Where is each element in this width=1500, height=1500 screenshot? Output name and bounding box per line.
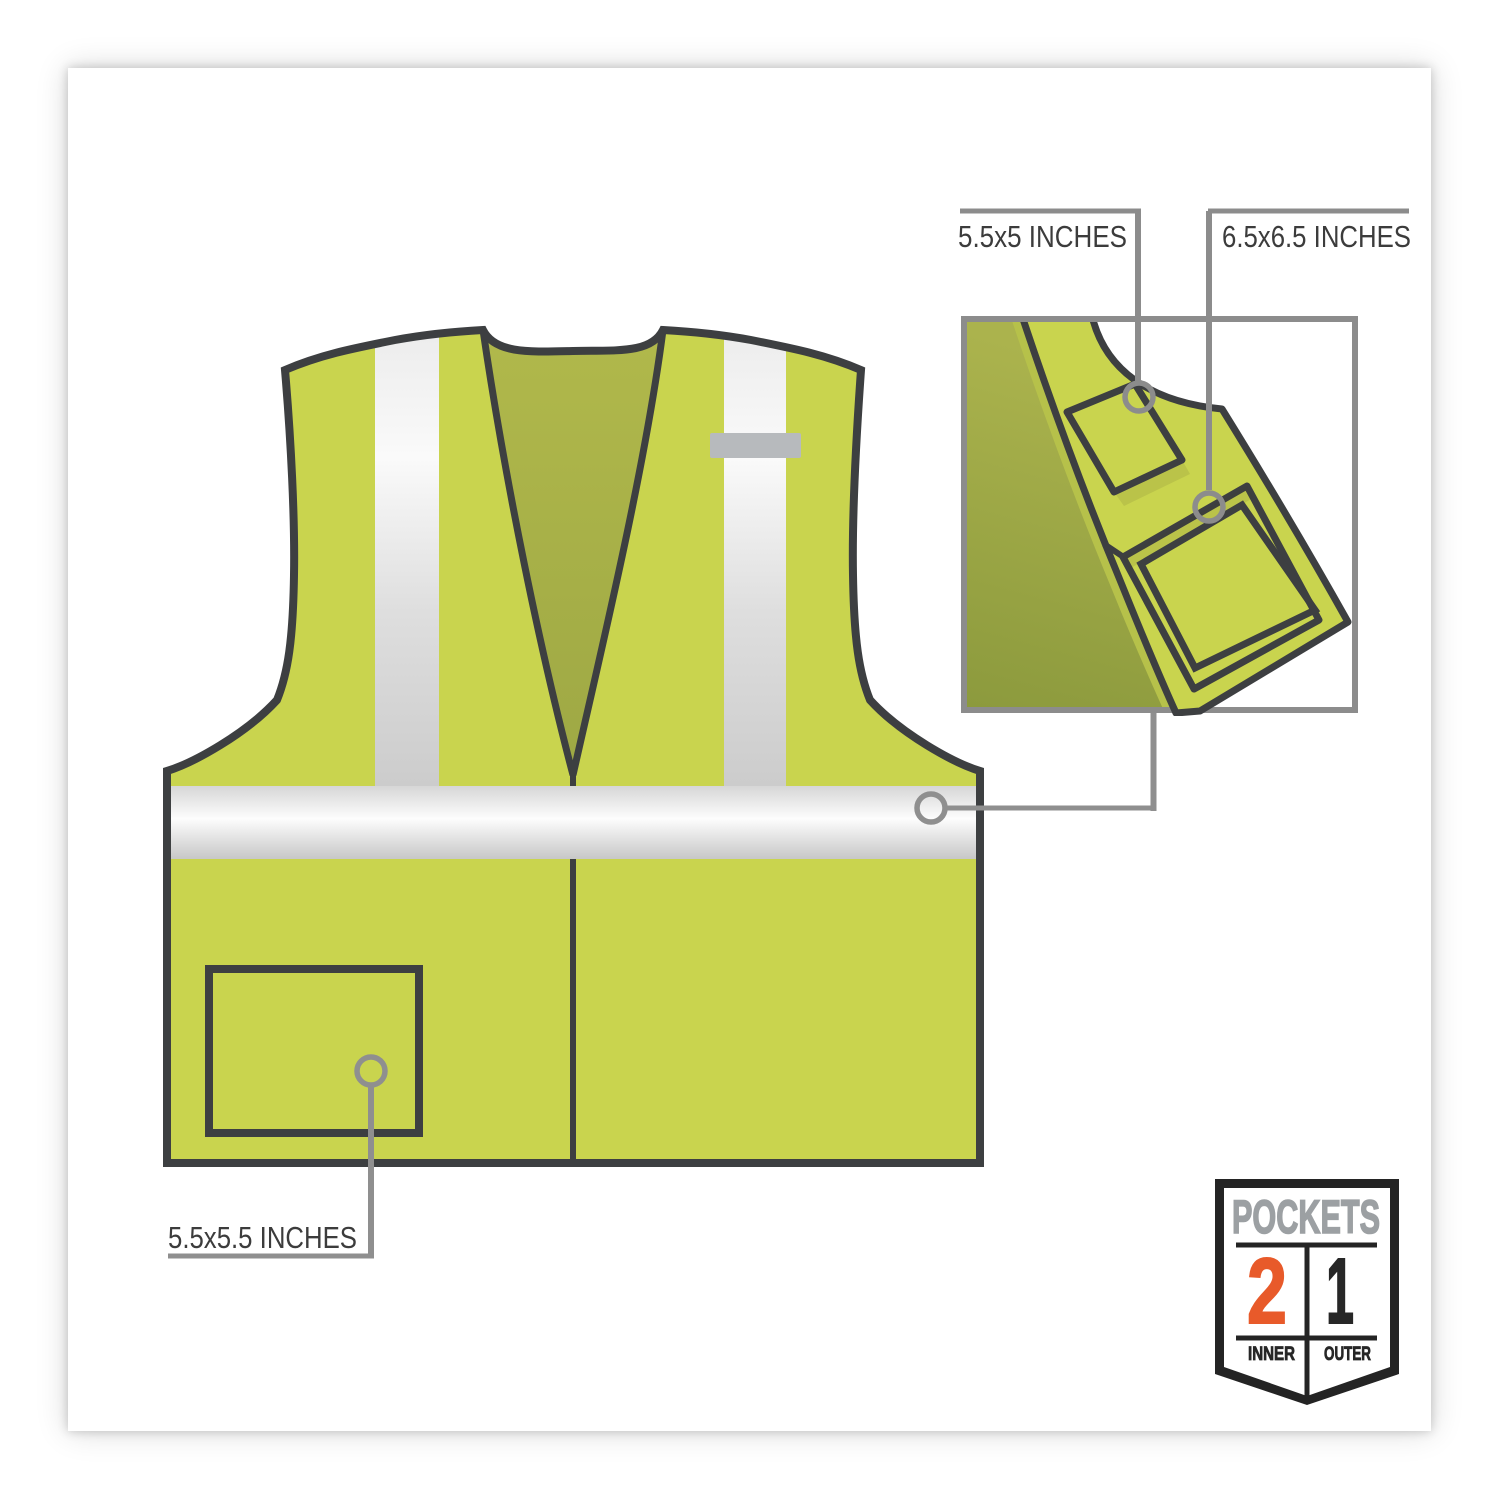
svg-text:5.5x5.5 INCHES: 5.5x5.5 INCHES (168, 1220, 357, 1255)
svg-text:POCKETS: POCKETS (1232, 1190, 1380, 1243)
svg-text:5.5x5 INCHES: 5.5x5 INCHES (958, 219, 1127, 254)
svg-text:OUTER: OUTER (1324, 1344, 1371, 1365)
svg-text:INNER: INNER (1248, 1344, 1295, 1365)
svg-text:6.5x6.5 INCHES: 6.5x6.5 INCHES (1222, 219, 1411, 254)
svg-text:2: 2 (1247, 1239, 1287, 1343)
svg-text:1: 1 (1326, 1239, 1354, 1343)
